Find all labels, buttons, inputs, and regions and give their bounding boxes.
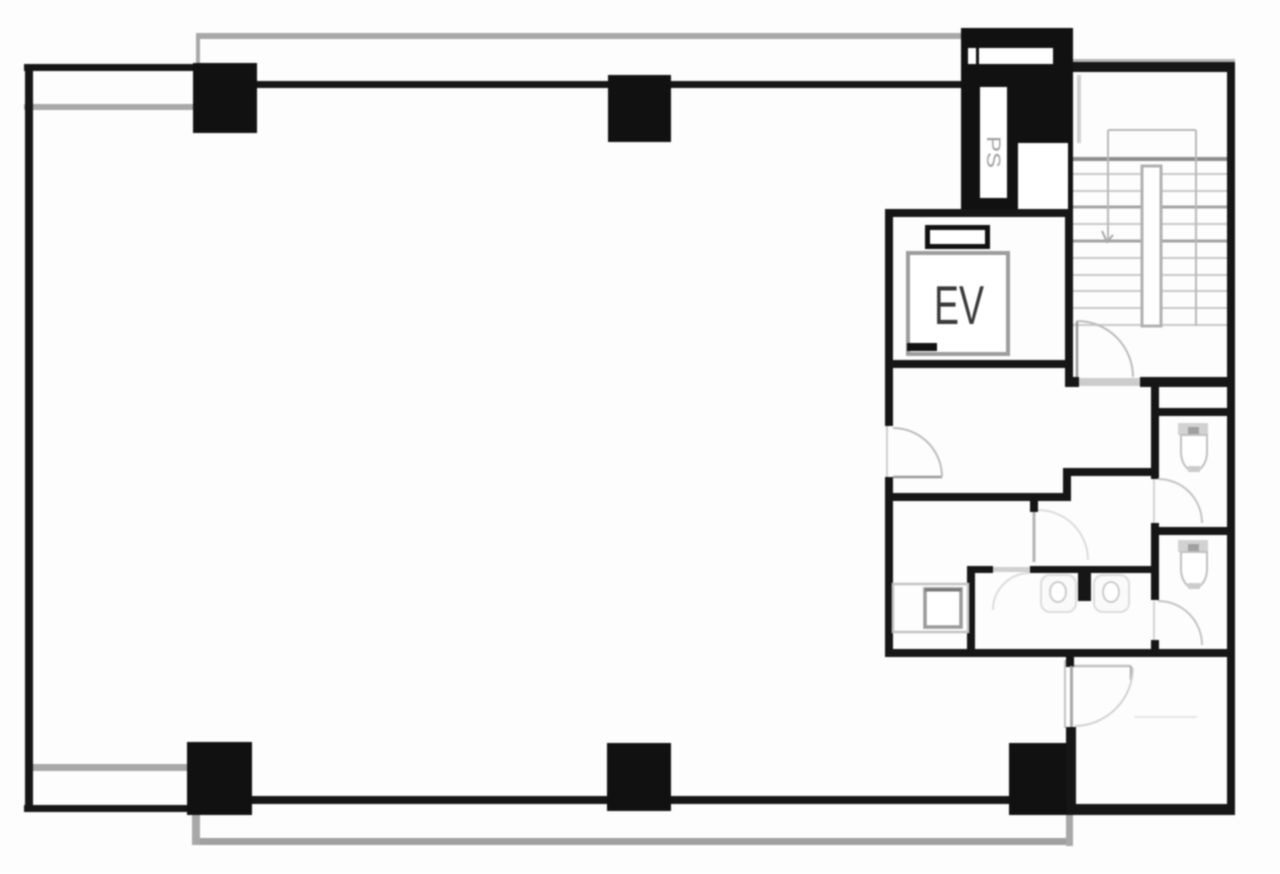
svg-text:EV: EV bbox=[934, 274, 984, 336]
svg-text:PS: PS bbox=[982, 136, 1003, 168]
